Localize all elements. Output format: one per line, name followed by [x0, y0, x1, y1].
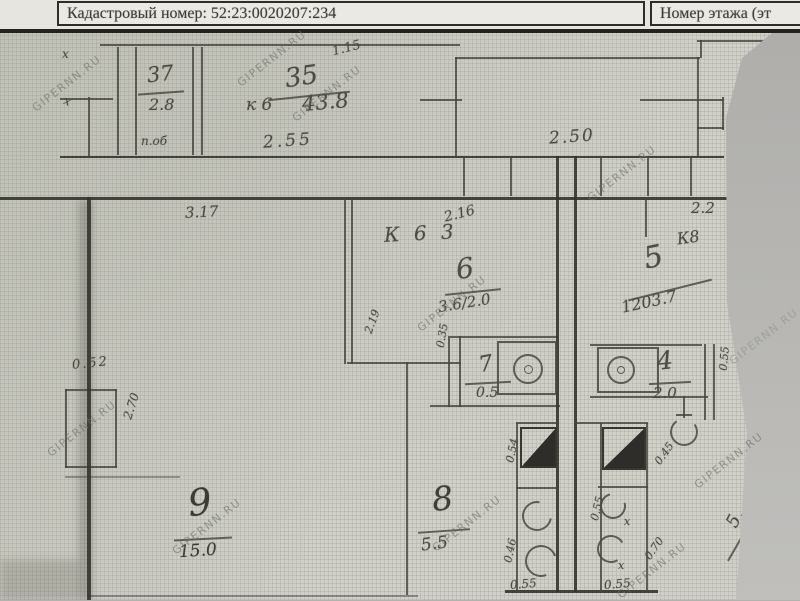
room-8-number: 8: [430, 481, 454, 516]
header-divider-line: [0, 29, 800, 33]
wall-closet: [115, 389, 117, 468]
shaft-wall: [574, 422, 648, 424]
room-37-area: 2.8: [149, 97, 174, 113]
wall: [201, 47, 203, 155]
wall: [459, 336, 461, 407]
watermark: GIPERNN.RU: [727, 306, 800, 368]
toilet-icon: [676, 414, 692, 416]
wall: [590, 396, 708, 398]
dim-label: 2.55: [262, 131, 313, 151]
wall: [88, 595, 418, 597]
wall: [697, 57, 699, 157]
wall: [450, 336, 558, 338]
scanned-document-photo: Кадастровый номер: 52:23:0020207:234 Ном…: [0, 0, 800, 600]
wall: [344, 197, 346, 364]
floor-number-text: Номер этажа (эт: [660, 5, 771, 22]
wall-outer-left: [87, 197, 91, 600]
wall: [65, 466, 117, 468]
wall: [722, 97, 724, 130]
wall: [351, 197, 353, 364]
wall: [697, 40, 772, 42]
wall: [117, 47, 119, 155]
room-5-number: 5: [641, 241, 666, 274]
room-7-area: 0.5: [476, 386, 498, 400]
shaft-wall: [516, 422, 558, 424]
wall: [88, 97, 90, 157]
wall: [65, 476, 180, 478]
wall: [697, 127, 724, 129]
wall: [448, 336, 450, 407]
room-5-sup: К8: [676, 229, 701, 248]
cadastral-number-text: Кадастровый номер: 52:23:0020207:234: [67, 5, 336, 22]
flat-number: 35: [283, 62, 319, 92]
wall: [135, 47, 137, 155]
room-37-number: 37: [146, 63, 175, 87]
dim-label: 0.52: [71, 355, 109, 372]
wall-tick: [647, 157, 649, 196]
wall-closet: [65, 389, 67, 468]
wall-main: [0, 197, 727, 200]
scan-shadow: [0, 560, 80, 600]
room-4-area: 2.0: [653, 386, 677, 401]
wall: [455, 57, 457, 157]
wall: [455, 57, 700, 59]
room-5b-number: 5,: [724, 507, 748, 531]
pencil-mark: х: [624, 516, 630, 527]
vent-shaft-symbol: [602, 427, 646, 470]
pencil-mark: х: [62, 94, 72, 108]
dim-label: 0.55: [589, 495, 606, 521]
dim-label: 0.45: [653, 440, 676, 466]
dim-label: 0.55: [510, 577, 538, 591]
floor-number-cell: Номер этажа (эт: [650, 1, 800, 26]
shaft-wall: [598, 486, 648, 488]
wall: [640, 99, 724, 101]
pencil-mark: х: [618, 560, 624, 571]
wall: [704, 344, 706, 420]
wall: [700, 40, 702, 58]
dim-label: 2.50: [548, 127, 595, 147]
sink-icon: [617, 366, 625, 374]
duct-circle: [516, 495, 558, 537]
fraction-bar: [727, 533, 745, 562]
dim-label: 2.19: [363, 308, 382, 335]
wall-tick: [690, 157, 692, 196]
dim-label: 3.17: [185, 204, 219, 221]
wall-center: [574, 156, 577, 592]
room-4-number: 4: [656, 347, 674, 374]
wall-tick: [510, 157, 512, 196]
room-5-area: 1203.7: [620, 288, 678, 315]
wall: [406, 362, 408, 595]
dim-label: 2.2: [691, 201, 715, 216]
wall: [645, 197, 647, 237]
wall: [65, 389, 117, 391]
sink-icon: [524, 365, 533, 374]
wall: [192, 47, 194, 155]
wall-tick: [463, 157, 465, 196]
floorplan-sheet: х х 1.15 2.55 2.50 37 2.8 п.об 35 к 6 43…: [0, 33, 800, 600]
dim-label: 2.16: [443, 203, 477, 224]
room-37-caption: п.об: [141, 135, 167, 147]
shaft-wall: [516, 487, 558, 489]
dim-label: 2.70: [122, 391, 142, 420]
room-7-number: 7: [477, 353, 495, 377]
vent-shaft-symbol: [520, 427, 557, 468]
wall: [347, 362, 461, 364]
pencil-mark: х: [62, 48, 69, 60]
wall: [60, 156, 724, 158]
flat-prefix: к 6: [246, 97, 272, 114]
wall: [713, 344, 715, 420]
dim-label: 1.15: [331, 39, 362, 59]
wall: [590, 344, 702, 346]
cadastral-number-cell: Кадастровый номер: 52:23:0020207:234: [57, 1, 645, 26]
